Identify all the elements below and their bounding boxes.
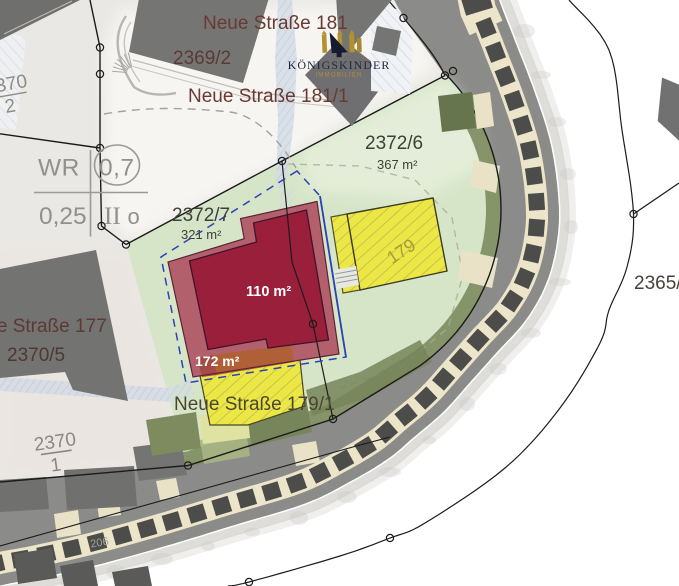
svg-text:110 m²: 110 m² — [246, 284, 291, 300]
svg-text:II: II — [104, 203, 121, 230]
svg-text:2365/1: 2365/1 — [634, 273, 679, 294]
svg-text:WR: WR — [38, 155, 80, 182]
svg-text:KÖNIGSKINDER: KÖNIGSKINDER — [288, 58, 391, 72]
svg-text:321 m²: 321 m² — [181, 227, 222, 242]
svg-text:2372/7: 2372/7 — [172, 205, 230, 226]
svg-text:Neue Straße 177: Neue Straße 177 — [0, 316, 107, 337]
svg-text:Neue Straße 181/1: Neue Straße 181/1 — [188, 86, 349, 107]
svg-text:172 m²: 172 m² — [195, 353, 240, 369]
svg-text:2370/5: 2370/5 — [7, 345, 65, 366]
svg-text:367 m²: 367 m² — [377, 157, 418, 172]
svg-text:2372/6: 2372/6 — [365, 133, 423, 154]
svg-text:o: o — [128, 204, 140, 229]
svg-text:Neue Straße 179/1: Neue Straße 179/1 — [174, 394, 335, 415]
svg-text:Neue Straße 181: Neue Straße 181 — [203, 13, 348, 34]
svg-text:2369/2: 2369/2 — [173, 48, 231, 69]
svg-text:0,25: 0,25 — [39, 203, 87, 230]
svg-text:0,7: 0,7 — [99, 155, 135, 182]
svg-text:IMMOBILIEN: IMMOBILIEN — [315, 72, 362, 79]
